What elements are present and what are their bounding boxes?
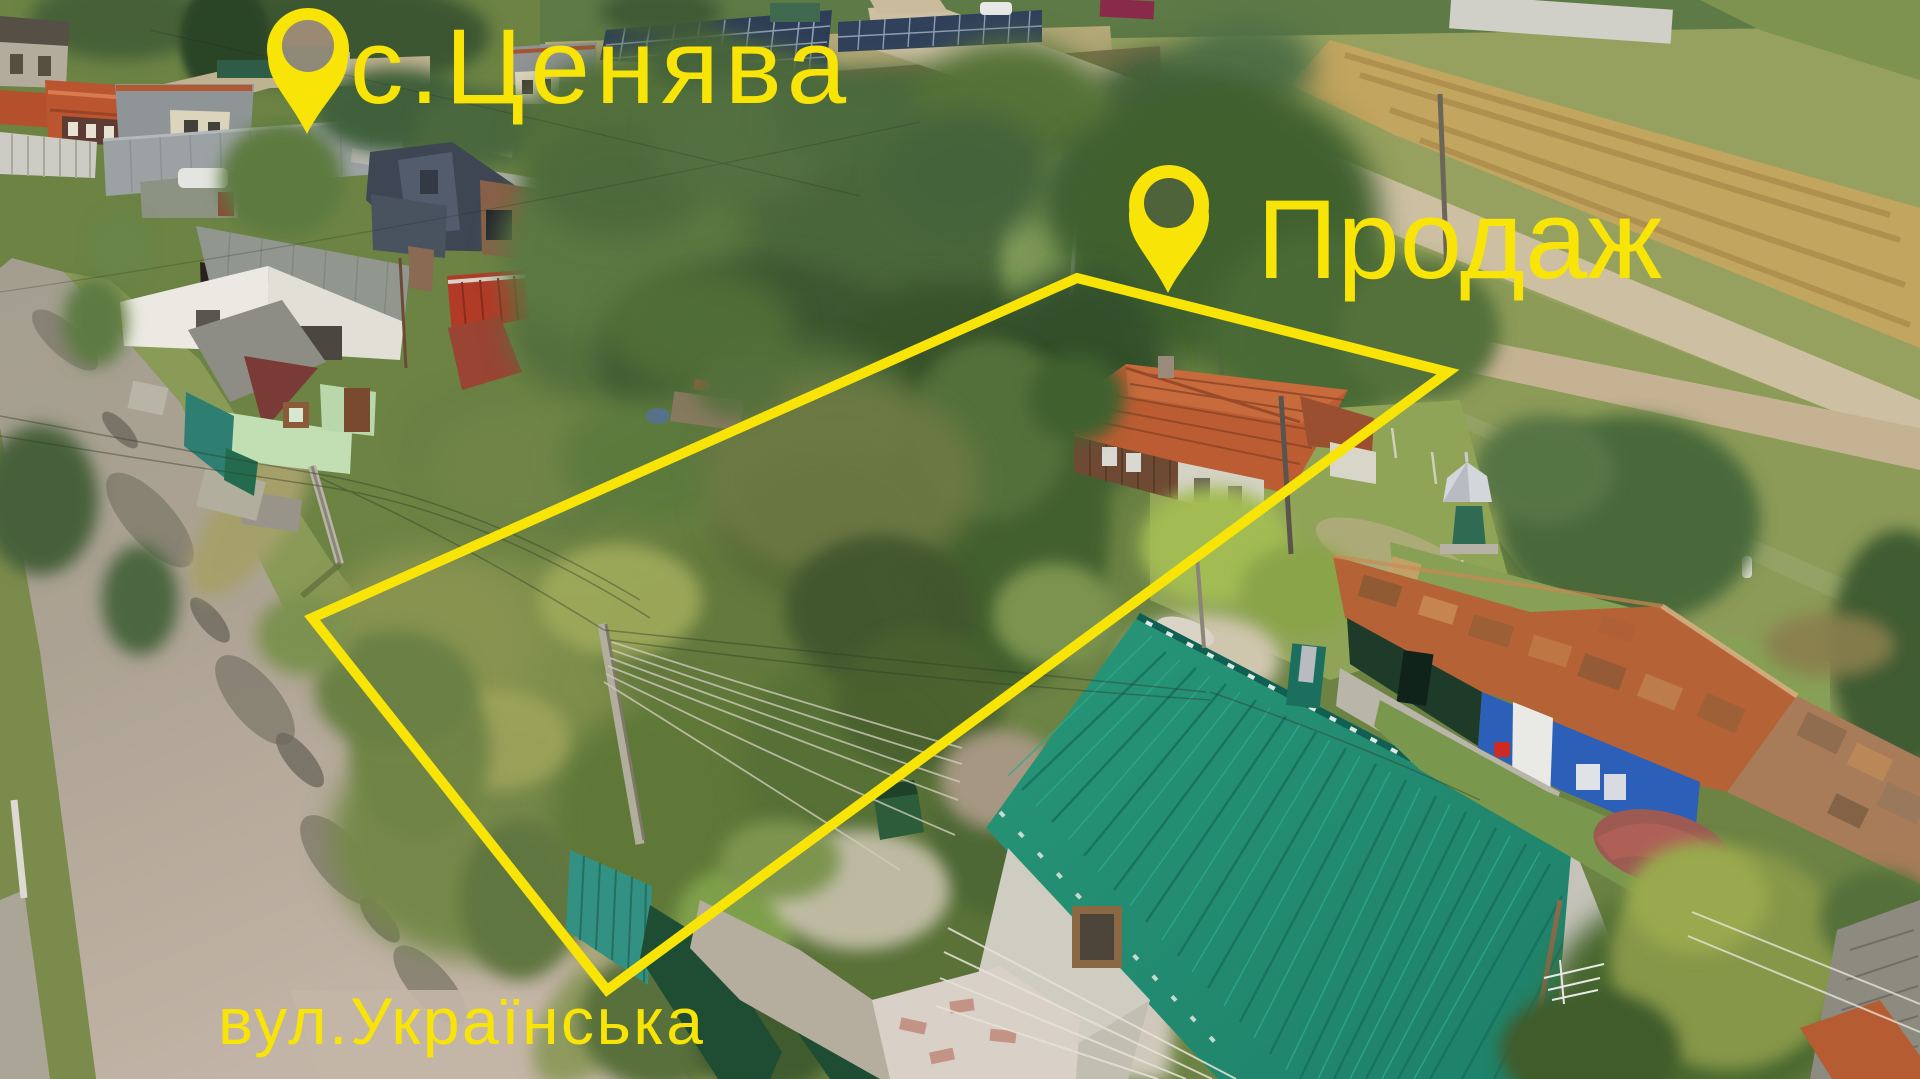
svg-text:Продаж: Продаж (1257, 177, 1662, 302)
svg-text:вул.Українська: вул.Українська (218, 984, 705, 1058)
svg-text:с.Ценява: с.Ценява (350, 6, 852, 126)
